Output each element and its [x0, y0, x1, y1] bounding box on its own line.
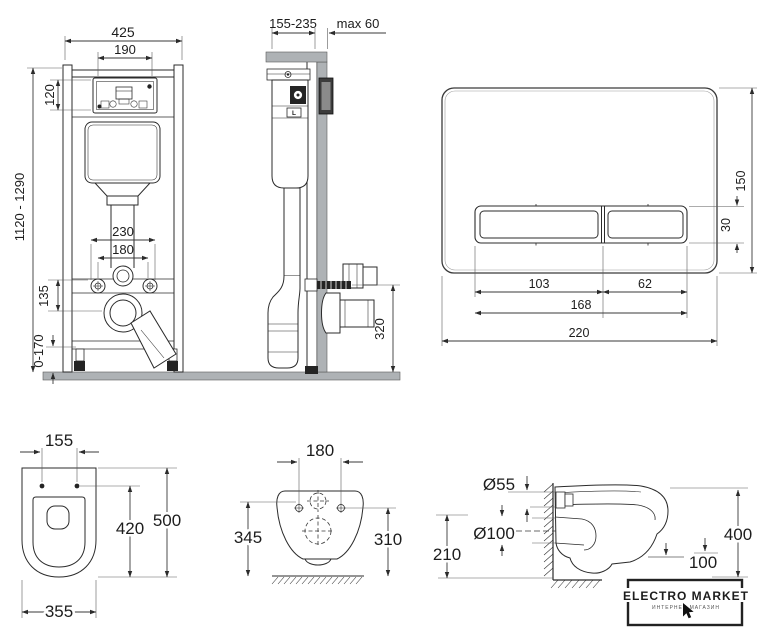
seat-bolt-right — [75, 484, 80, 489]
dim-bowl-length: 500 — [153, 511, 181, 530]
dim-drain-height: 210 — [433, 545, 461, 564]
dim-button-small-width: 62 — [638, 277, 652, 291]
dim-outlet-drop: 135 — [36, 285, 51, 307]
flush-plate-housing-core — [322, 82, 331, 110]
dim-frame-width: 425 — [111, 24, 135, 40]
dim-button-height: 30 — [719, 218, 733, 232]
dim-seat-bolt-spacing: 155 — [45, 431, 73, 450]
foot-pad-left — [74, 361, 85, 371]
technical-drawing-sheet: 425 190 120 1120 - 1290 230 180 135 0-17… — [0, 0, 775, 640]
wall-hatch — [544, 484, 553, 576]
dim-fixing-span-outer: 230 — [112, 224, 134, 239]
toilet-bowl-top-view: 155 420 500 355 — [20, 431, 181, 621]
dim-height-right: 310 — [374, 530, 402, 549]
frame-connections — [91, 266, 176, 368]
floor-hatch — [551, 580, 600, 588]
dim-bowl-inner-length: 420 — [116, 519, 144, 538]
installation-frame-side-view: L — [266, 16, 400, 374]
toilet-bowl-side-view: Ø55 Ø100 210 400 100 — [433, 475, 752, 588]
dim-bowl-depth: 400 — [724, 525, 752, 544]
dim-buttons-width: 168 — [571, 298, 592, 312]
installation-frame-front-view: 425 190 120 1120 - 1290 230 180 135 0-17… — [12, 24, 183, 384]
foot-pad-right — [167, 361, 178, 371]
flush-pipe-cap — [113, 266, 133, 286]
logo-title: ELECTRO MARKET — [623, 589, 749, 603]
dim-button-large-width: 103 — [529, 277, 550, 291]
frame-left-rail — [63, 65, 72, 372]
electro-market-logo: ELECTRO MARKET ИНТЕРНЕТ-МАГАЗИН — [622, 580, 749, 625]
floor-slab — [43, 372, 400, 380]
dim-height-left: 345 — [234, 528, 262, 547]
dim-plate-width: 220 — [569, 326, 590, 340]
drain-elbow — [268, 276, 300, 368]
bowl-outlet-bump — [305, 559, 331, 565]
dim-bowl-width: 355 — [45, 602, 73, 621]
ground-hatch — [272, 577, 362, 584]
dim-drain-diameter: Ø100 — [473, 524, 515, 543]
flush-buttons-frame — [475, 206, 687, 243]
frame-right-rail — [174, 65, 183, 372]
dim-opening-height: 120 — [42, 84, 57, 106]
dim-depth-range: 155-235 — [269, 16, 317, 31]
dim-inlet-diameter: Ø55 — [483, 475, 515, 494]
dim-plate-height: 150 — [734, 171, 748, 192]
dim-rear-bolt-spacing: 180 — [306, 441, 334, 460]
outlet-bell-flange — [322, 293, 341, 333]
dim-fixing-span-inner: 180 — [112, 242, 134, 257]
dim-clearance: 100 — [689, 553, 717, 572]
frame-top-bar — [72, 70, 174, 77]
level-mark-label: L — [292, 110, 296, 117]
frame-foot-side — [305, 366, 318, 374]
dim-feet-range: 0-170 — [31, 334, 46, 367]
dim-outlet-height: 320 — [372, 318, 387, 340]
flush-plate-view: 150 30 103 62 168 220 — [442, 88, 757, 346]
wall-top-cap — [266, 52, 327, 62]
seat-bolt-left — [40, 484, 45, 489]
dim-frame-height-range: 1120 - 1290 — [12, 173, 27, 241]
rod-nut — [305, 279, 317, 291]
dim-wall-max: max 60 — [337, 16, 380, 31]
toilet-bowl-rear-view: 180 345 310 — [234, 441, 402, 584]
inlet-stub — [556, 492, 565, 508]
flush-plate-body — [442, 88, 717, 273]
frame-foot-left — [76, 349, 84, 361]
installation-drawing: 425 190 120 1120 - 1290 230 180 135 0-17… — [0, 0, 775, 640]
dim-opening-width: 190 — [114, 42, 136, 57]
cistern-access-box — [93, 78, 157, 113]
flush-pipe-side — [284, 188, 300, 276]
